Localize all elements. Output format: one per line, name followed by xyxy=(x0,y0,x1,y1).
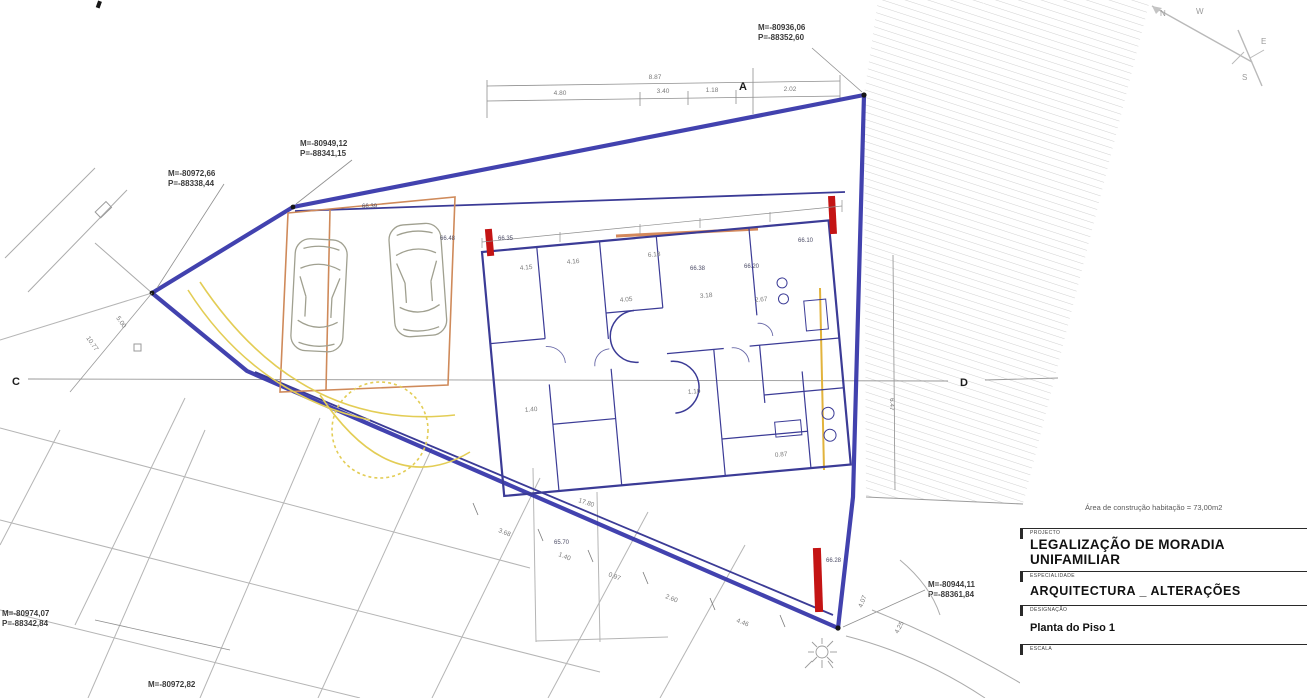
svg-text:2.60: 2.60 xyxy=(664,593,679,604)
svg-text:66.48: 66.48 xyxy=(440,236,456,242)
svg-text:P=-88341,15: P=-88341,15 xyxy=(300,149,347,158)
title-block-project-section: PROJECTO LEGALIZAÇÃO DE MORADIA UNIFAMIL… xyxy=(1020,528,1307,571)
svg-text:M=-80972,82: M=-80972,82 xyxy=(148,680,196,689)
dim-top-total: 8.87 xyxy=(649,74,662,81)
svg-text:66.10: 66.10 xyxy=(798,238,814,244)
car-icon xyxy=(388,222,448,337)
svg-text:P=-88361,84: P=-88361,84 xyxy=(928,590,975,599)
project-title-line1: LEGALIZAÇÃO DE MORADIA xyxy=(1030,537,1307,552)
compass-letters: N W E S xyxy=(1160,7,1266,82)
title-block-scale-section: ESCALA xyxy=(1020,644,1307,653)
svg-text:M=-80944,11: M=-80944,11 xyxy=(928,580,975,589)
left-tip-dimensions: 10.77 5.00 xyxy=(70,293,152,392)
section-marker-c: C xyxy=(12,376,20,388)
svg-text:M=-80972,66: M=-80972,66 xyxy=(168,169,216,178)
dim-lower-right: 4.07 xyxy=(857,594,868,609)
svg-text:4.15: 4.15 xyxy=(520,264,534,272)
section-marker-a: A xyxy=(739,81,747,93)
specialty-label: ESPECIALIDADE xyxy=(1030,573,1307,580)
svg-text:6.18: 6.18 xyxy=(648,251,662,259)
specialty-title: ARQUITECTURA _ ALTERAÇÕES xyxy=(1030,584,1307,599)
svg-text:66.35: 66.35 xyxy=(498,236,514,242)
survey-points xyxy=(96,0,867,630)
svg-text:5.00: 5.00 xyxy=(114,315,127,330)
lot-boundary xyxy=(152,95,864,628)
svg-text:66.39: 66.39 xyxy=(362,204,378,210)
svg-text:3.18: 3.18 xyxy=(700,292,714,300)
dim-lower-right: 4.25 xyxy=(894,620,906,635)
svg-text:17.80: 17.80 xyxy=(577,497,595,509)
level-labels: 66.39 66.48 66.35 66.10 66.20 66.38 66.2… xyxy=(362,204,842,564)
floor-plan xyxy=(482,220,851,496)
svg-text:P=-88352,60: P=-88352,60 xyxy=(758,33,805,42)
title-block-specialty-section: ESPECIALIDADE ARQUITECTURA _ ALTERAÇÕES xyxy=(1020,571,1307,599)
svg-text:4.16: 4.16 xyxy=(567,258,581,266)
designation-title: Planta do Piso 1 xyxy=(1030,622,1307,635)
svg-text:M=-80949,12: M=-80949,12 xyxy=(300,139,348,148)
svg-text:10.77: 10.77 xyxy=(84,335,99,353)
project-label: PROJECTO xyxy=(1030,530,1307,537)
dim-top-seg: 4.80 xyxy=(554,90,567,97)
architectural-plan-sheet: C D 8.87 4.80 3.40 1.18 2.02 A xyxy=(0,0,1307,698)
svg-text:S: S xyxy=(1242,73,1247,82)
terrain-lines xyxy=(0,293,745,698)
svg-text:66.38: 66.38 xyxy=(690,266,706,272)
road-lines-top-left xyxy=(5,168,152,351)
car-icon xyxy=(290,238,348,353)
designation-label: DESIGNAÇÃO xyxy=(1030,607,1307,614)
dim-top-seg: 3.40 xyxy=(657,88,670,95)
plan-orange-accents xyxy=(616,229,824,470)
title-block: PROJECTO LEGALIZAÇÃO DE MORADIA UNIFAMIL… xyxy=(1020,528,1307,698)
svg-text:N: N xyxy=(1160,9,1166,18)
svg-text:P=-88338,44: P=-88338,44 xyxy=(168,179,215,188)
svg-text:2.67: 2.67 xyxy=(755,296,769,304)
svg-text:1.40: 1.40 xyxy=(525,406,539,414)
svg-text:M=-80974,07: M=-80974,07 xyxy=(2,609,50,618)
dim-top-seg: 1.18 xyxy=(706,87,719,94)
dim-top-seg: 2.02 xyxy=(784,86,797,93)
svg-text:4.46: 4.46 xyxy=(735,617,750,628)
svg-text:65.70: 65.70 xyxy=(554,540,570,546)
svg-text:3.68: 3.68 xyxy=(497,527,512,538)
svg-text:0.87: 0.87 xyxy=(775,451,789,459)
dim-right-side: 6.47 xyxy=(888,398,895,411)
project-title-line2: UNIFAMILIAR xyxy=(1030,552,1307,567)
svg-text:0.97: 0.97 xyxy=(607,571,622,582)
survey-star-icon xyxy=(805,638,837,668)
svg-text:E: E xyxy=(1261,37,1266,46)
svg-text:4.05: 4.05 xyxy=(620,296,634,304)
coordinate-labels: M=-80936,06 P=-88352,60 M=-80949,12 P=-8… xyxy=(2,23,975,689)
svg-text:M=-80936,06: M=-80936,06 xyxy=(758,23,806,32)
svg-text:66.28: 66.28 xyxy=(826,558,842,564)
garage-outline xyxy=(280,197,455,392)
svg-text:P=-88342,84: P=-88342,84 xyxy=(2,619,49,628)
svg-text:1.40: 1.40 xyxy=(557,551,572,562)
title-block-designation-section: DESIGNAÇÃO Planta do Piso 1 xyxy=(1020,605,1307,635)
section-marker-d: D xyxy=(960,377,968,389)
area-note: Área de construção habitação = 73,00m2 xyxy=(1085,503,1222,512)
svg-text:1.10: 1.10 xyxy=(688,388,702,396)
svg-text:W: W xyxy=(1196,7,1204,16)
svg-text:66.20: 66.20 xyxy=(744,264,760,270)
scale-label: ESCALA xyxy=(1030,646,1307,653)
hatched-area xyxy=(864,0,1150,504)
